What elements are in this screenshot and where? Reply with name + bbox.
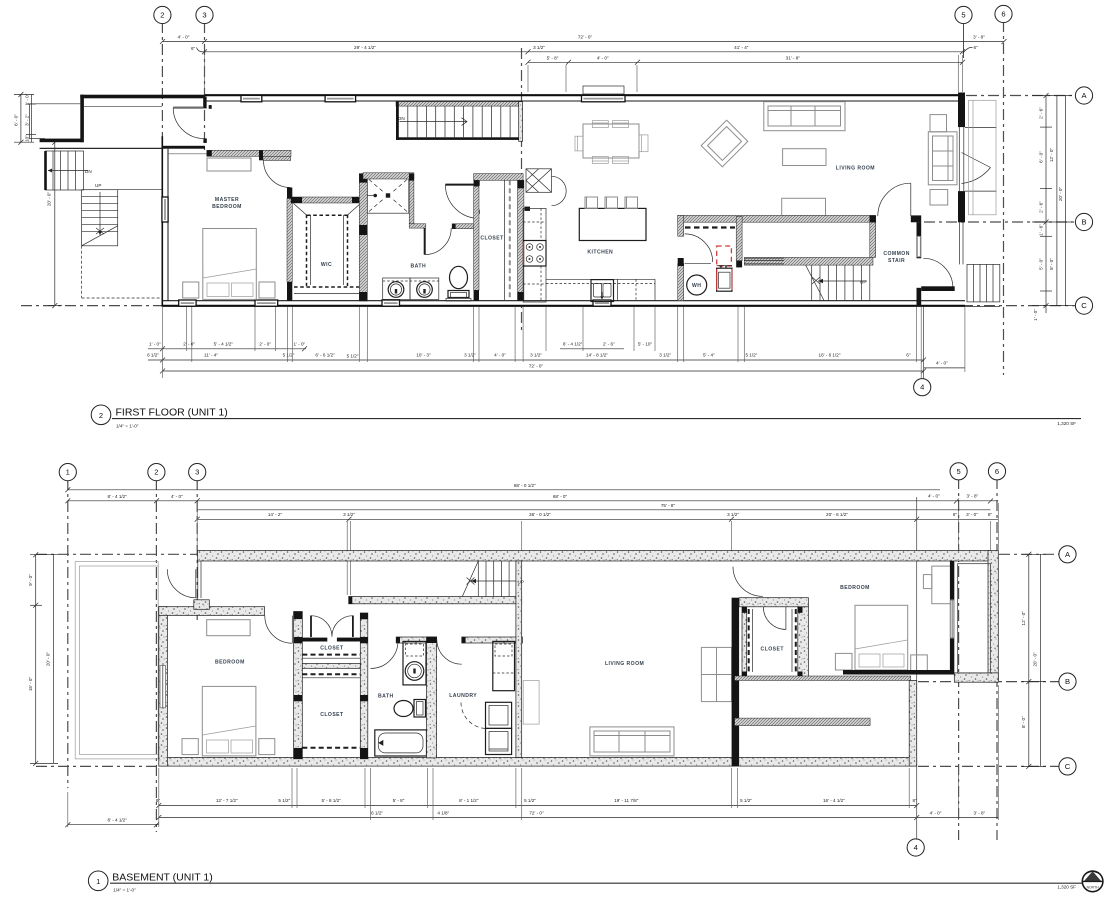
svg-text:10' - 3": 10' - 3" [416,353,431,358]
svg-text:5 1/2": 5 1/2" [745,353,757,358]
svg-text:C: C [1081,301,1087,310]
svg-text:CLOSET: CLOSET [480,236,504,242]
svg-text:5' - 4": 5' - 4" [703,353,715,358]
svg-text:2' - 0": 2' - 0" [183,342,195,347]
svg-text:BATH: BATH [378,693,394,699]
svg-text:3' - 2": 3' - 2" [24,114,29,126]
svg-text:1: 1 [66,468,70,477]
svg-text:20' - 0": 20' - 0" [45,652,50,667]
svg-text:6 1/2": 6 1/2" [371,811,383,816]
svg-text:4' - 0": 4' - 0" [597,55,609,60]
svg-text:4' - 0": 4' - 0" [930,811,942,816]
svg-text:UP: UP [518,580,524,585]
svg-text:3: 3 [195,468,199,477]
svg-text:2' - 6": 2' - 6" [1038,107,1043,119]
svg-text:15' - 0": 15' - 0" [28,677,33,692]
svg-text:CLOSET: CLOSET [320,645,344,651]
svg-text:5 1/2": 5 1/2" [278,798,290,803]
svg-text:6: 6 [1001,10,1005,19]
svg-text:16' - 4 1/2": 16' - 4 1/2" [823,798,845,803]
svg-text:8' - 4 1/2": 8' - 4 1/2" [108,818,128,823]
svg-text:20' - 6 1/2": 20' - 6 1/2" [826,512,848,517]
svg-text:BASEMENT (UNIT 1): BASEMENT (UNIT 1) [112,872,213,884]
svg-text:3 1/2": 3 1/2" [343,512,355,517]
svg-text:6": 6" [191,46,196,51]
svg-text:2' - 6": 2' - 6" [603,342,615,347]
svg-text:1' - 0": 1' - 0" [293,342,305,347]
svg-text:1,320 SF: 1,320 SF [1057,421,1076,426]
svg-text:STAIR: STAIR [888,258,905,264]
svg-text:8' - 0": 8' - 0" [1049,258,1054,270]
svg-text:1/4" = 1'-0": 1/4" = 1'-0" [113,888,136,893]
svg-text:1' - 0": 1' - 0" [1033,309,1038,321]
svg-text:12' - 7 1/2": 12' - 7 1/2" [216,798,238,803]
svg-text:72' - 0": 72' - 0" [529,364,544,369]
svg-text:1: 1 [96,877,100,886]
svg-text:COMMON: COMMON [883,251,909,257]
svg-text:5' - 0": 5' - 0" [1038,258,1043,270]
svg-text:6": 6" [974,45,979,50]
svg-text:31' - 8": 31' - 8" [786,55,801,60]
svg-text:75' - 8": 75' - 8" [661,503,676,508]
svg-text:FIRST FLOOR (UNIT 1): FIRST FLOOR (UNIT 1) [116,407,228,419]
svg-text:LIVING ROOM: LIVING ROOM [605,661,644,667]
svg-text:5' - 8": 5' - 8" [547,55,559,60]
svg-text:29' - 4 1/2": 29' - 4 1/2" [354,45,376,50]
svg-text:5: 5 [956,467,960,476]
svg-text:5 1/2": 5 1/2" [283,353,295,358]
svg-text:BATH: BATH [411,263,427,269]
svg-text:5' - 8": 5' - 8" [393,798,405,803]
svg-text:3' - 8": 3' - 8" [966,494,978,499]
svg-text:3 1/2": 3 1/2" [727,512,739,517]
svg-text:4' - 0": 4' - 0" [928,494,940,499]
svg-text:1' - 6": 1' - 6" [1038,224,1043,236]
svg-text:19' - 11 7/8": 19' - 11 7/8" [614,798,638,803]
svg-text:8' - 1 1/2": 8' - 1 1/2" [459,798,479,803]
svg-text:4' - 0": 4' - 0" [936,361,948,366]
svg-text:72' - 0": 72' - 0" [529,811,544,816]
svg-text:3 1/2": 3 1/2" [533,45,545,50]
svg-text:72' - 0": 72' - 0" [578,35,593,40]
svg-text:LAUNDRY: LAUNDRY [449,693,477,699]
svg-text:LIVING ROOM: LIVING ROOM [836,166,875,172]
svg-text:5' - 10": 5' - 10" [638,342,653,347]
svg-text:WIC: WIC [321,262,332,268]
svg-text:3' - 8": 3' - 8" [973,35,985,40]
svg-text:3 1/2": 3 1/2" [659,353,671,358]
svg-text:4' - 0": 4' - 0" [171,494,183,499]
svg-text:68' - 0": 68' - 0" [553,494,568,499]
svg-text:2: 2 [99,411,103,420]
svg-text:1' - 0": 1' - 0" [149,342,161,347]
svg-text:B: B [1065,677,1070,686]
svg-text:WH: WH [692,283,701,289]
svg-text:12' - 0": 12' - 0" [1021,611,1026,626]
svg-text:BEDROOM: BEDROOM [215,660,245,666]
svg-text:41' - 4": 41' - 4" [734,45,749,50]
svg-text:1' - 0": 1' - 0" [24,93,29,105]
svg-text:3' - 0": 3' - 0" [966,512,978,517]
svg-text:3 1/2": 3 1/2" [464,353,476,358]
svg-text:BEDROOM: BEDROOM [840,585,870,591]
svg-text:12' - 0": 12' - 0" [1049,148,1054,163]
svg-text:6' - 0": 6' - 0" [1038,151,1043,163]
svg-text:20' - 0": 20' - 0" [1033,652,1038,667]
svg-text:5 1/2": 5 1/2" [524,798,536,803]
svg-text:CLOSET: CLOSET [320,712,344,718]
svg-text:5' - 4 1/2": 5' - 4 1/2" [214,342,234,347]
svg-text:2: 2 [154,468,158,477]
svg-text:8' - 4 1/2": 8' - 4 1/2" [108,494,128,499]
svg-text:14' - 8 1/2": 14' - 8 1/2" [586,353,608,358]
svg-text:8": 8" [156,798,161,803]
svg-text:16' - 6 1/2": 16' - 6 1/2" [819,353,841,358]
svg-text:4' - 0": 4' - 0" [494,353,506,358]
svg-text:UP: UP [860,280,866,285]
svg-text:3' - 8": 3' - 8" [974,811,986,816]
svg-text:6": 6" [906,353,911,358]
svg-text:4' - 0": 4' - 0" [178,35,190,40]
svg-text:3: 3 [202,11,206,20]
svg-text:BEDROOM: BEDROOM [212,204,242,210]
svg-text:4: 4 [920,383,924,392]
svg-text:5 1/2": 5 1/2" [740,798,752,803]
svg-text:6' - 0": 6' - 0" [14,114,19,126]
svg-text:8' - 0": 8' - 0" [1021,716,1026,728]
svg-text:6 1/2": 6 1/2" [147,353,159,358]
svg-text:6: 6 [995,467,999,476]
svg-text:6' - 4 1/2": 6' - 4 1/2" [563,342,583,347]
svg-text:5' - 8 1/2": 5' - 8 1/2" [322,798,342,803]
svg-text:5: 5 [961,11,965,20]
svg-text:UP: UP [95,183,101,188]
svg-text:6' - 6 1/2": 6' - 6 1/2" [315,353,335,358]
svg-text:DN: DN [398,116,405,121]
svg-text:36' - 0 1/2": 36' - 0 1/2" [529,512,551,517]
svg-text:DN: DN [85,169,92,174]
svg-text:10": 10" [24,135,29,142]
svg-text:2' - 6": 2' - 6" [1038,201,1043,213]
svg-text:3 1/2": 3 1/2" [530,353,542,358]
svg-text:9' - 0": 9' - 0" [28,574,33,586]
svg-text:CLOSET: CLOSET [761,647,785,653]
svg-text:5 1/2": 5 1/2" [347,354,359,359]
svg-text:2' - 0": 2' - 0" [259,342,271,347]
svg-text:8": 8" [988,512,993,517]
svg-text:4 1/8": 4 1/8" [437,811,449,816]
svg-text:KITCHEN: KITCHEN [587,250,613,256]
svg-text:MASTER: MASTER [215,197,239,203]
svg-text:20' - 0": 20' - 0" [47,192,52,207]
svg-text:1/4" = 1'-0": 1/4" = 1'-0" [116,424,139,429]
svg-text:4: 4 [914,843,918,852]
svg-text:NORTH: NORTH [1087,885,1100,889]
svg-text:20' - 0": 20' - 0" [1058,187,1063,202]
svg-text:8": 8" [953,512,958,517]
svg-text:88' - 0 1/2": 88' - 0 1/2" [514,483,536,488]
svg-text:1,320 SF: 1,320 SF [1057,885,1076,890]
svg-text:14' - 2": 14' - 2" [268,512,283,517]
svg-text:B: B [1081,218,1086,227]
svg-text:C: C [1065,762,1071,771]
svg-text:2: 2 [160,11,164,20]
svg-text:11' - 4": 11' - 4" [204,353,218,358]
